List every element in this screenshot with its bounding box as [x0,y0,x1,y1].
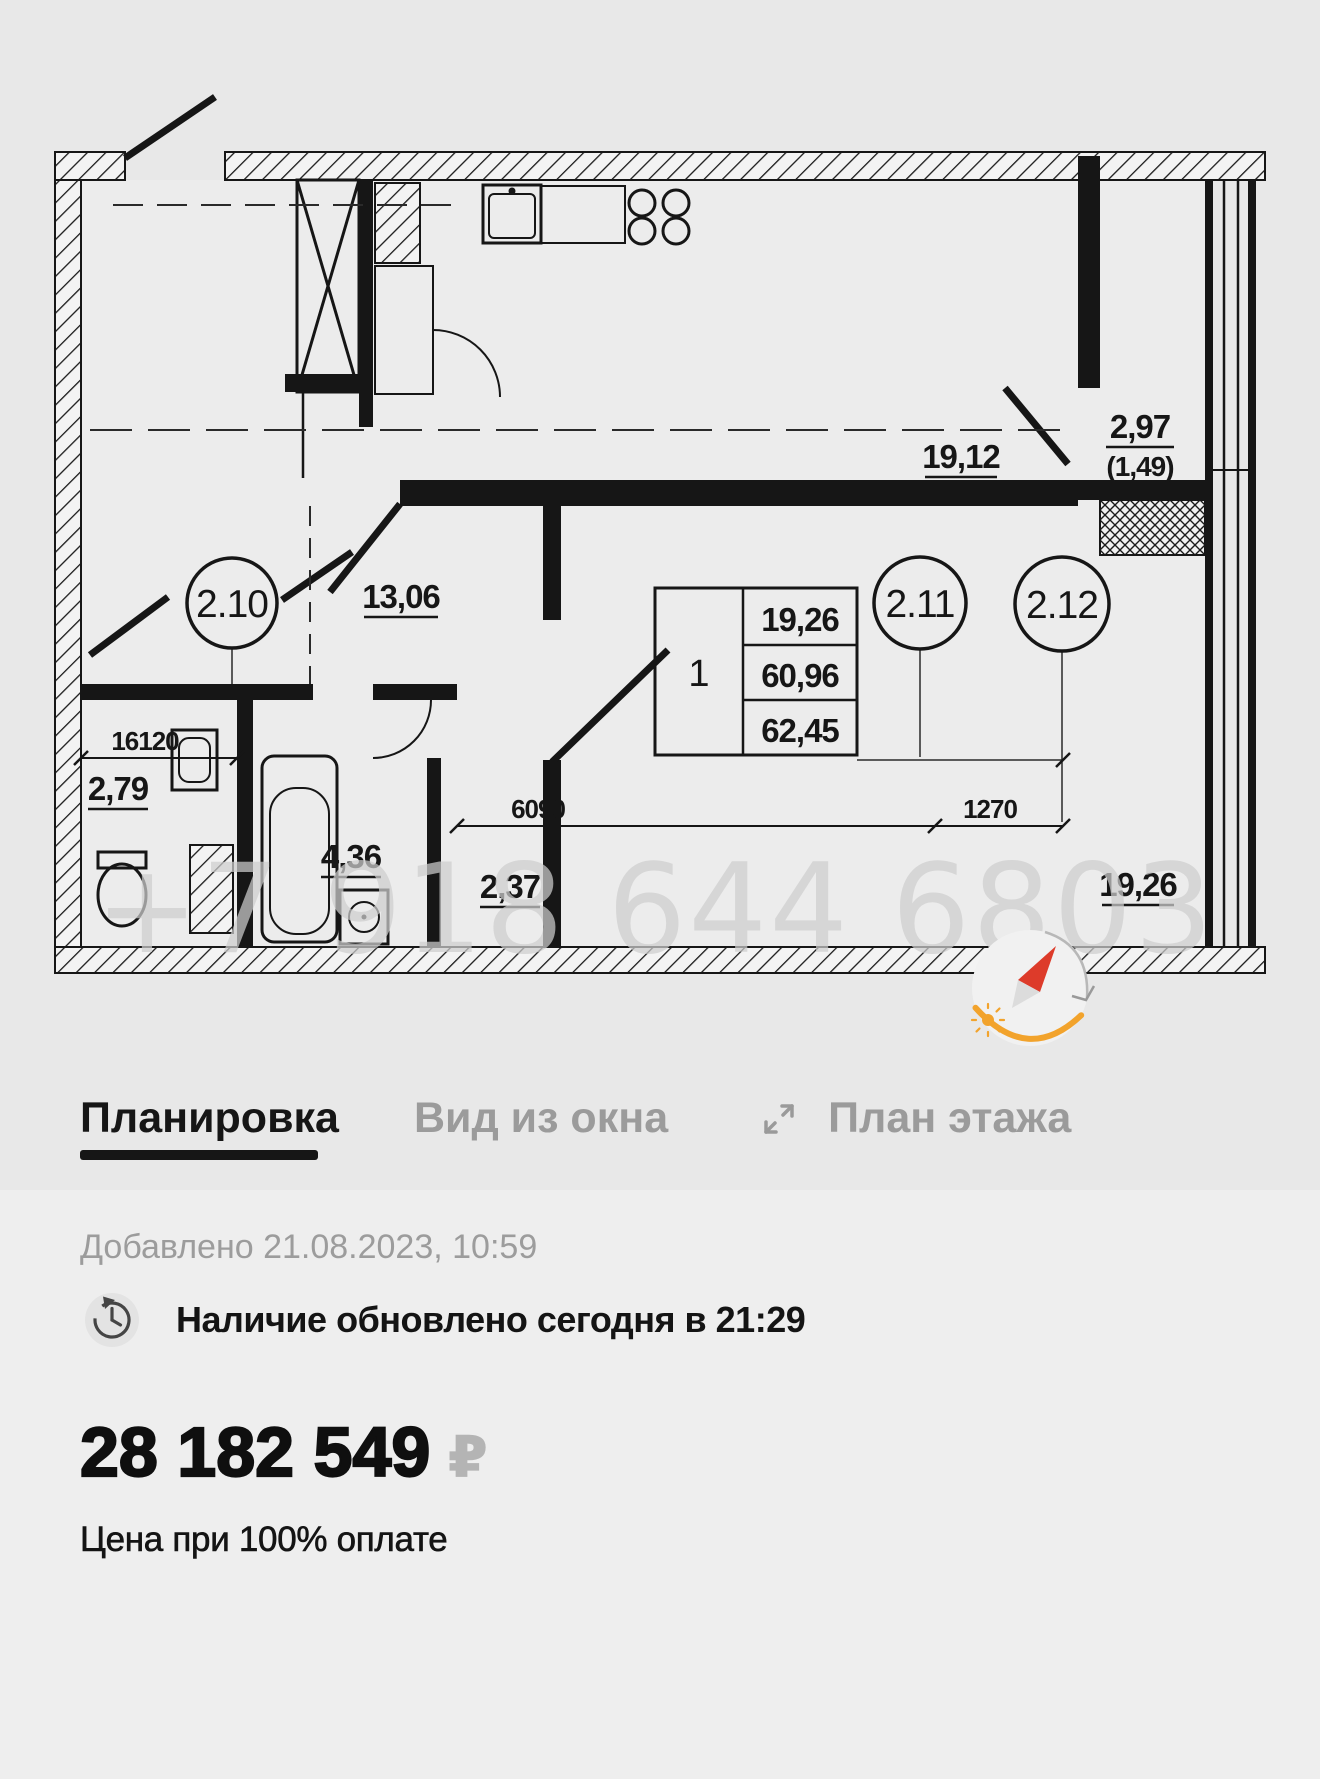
room-label-living: 19,12 [922,438,1000,475]
room-label-wc: 2,79 [88,770,149,807]
ruble-sign: ₽ [448,1425,487,1490]
tab-floor-plan[interactable]: План этажа [828,1094,1071,1143]
price-row: 28 182 549 ₽ [80,1412,487,1492]
table-area-3: 62,45 [761,712,839,749]
availability-row: Наличие обновлено сегодня в 21:29 [84,1292,805,1348]
added-date: Добавлено 21.08.2023, 10:59 [80,1228,537,1267]
tab-window-view[interactable]: Вид из окна [414,1094,668,1143]
dim-6090: 6090 [511,794,565,824]
tab-layout[interactable]: Планировка [80,1094,339,1143]
room-label-balcony: 2,97 [1110,408,1170,445]
sun-icon [972,1004,1004,1036]
compass-widget[interactable] [958,916,1102,1060]
floor-plan-image[interactable]: 16120 6090 1270 2.10 2.11 2.12 1 19,26 6… [0,0,1320,1075]
availability-text: Наличие обновлено сегодня в 21:29 [176,1299,805,1341]
active-tab-indicator [80,1150,318,1160]
room-label-corridor: 13,06 [362,578,440,615]
listing-info-card: Добавлено 21.08.2023, 10:59 Наличие обно… [0,1190,1320,1779]
axis-marker-210: 2.10 [196,583,268,626]
dim-16120: 16120 [111,726,179,756]
axis-marker-212: 2.12 [1026,584,1098,627]
price-note: Цена при 100% оплате [80,1520,447,1560]
dim-1270: 1270 [963,794,1017,824]
room-label-balcony-reduced: (1,49) [1106,451,1173,482]
axis-marker-211: 2.11 [885,583,954,626]
expand-icon[interactable] [756,1096,802,1142]
tab-bar: Планировка Вид из окна План этажа [80,1094,1071,1143]
unit-number: 1 [688,653,709,695]
table-area-2: 60,96 [761,657,839,694]
table-area-1: 19,26 [761,601,839,638]
clock-refresh-icon [84,1292,140,1348]
price-value: 28 182 549 [80,1412,430,1492]
